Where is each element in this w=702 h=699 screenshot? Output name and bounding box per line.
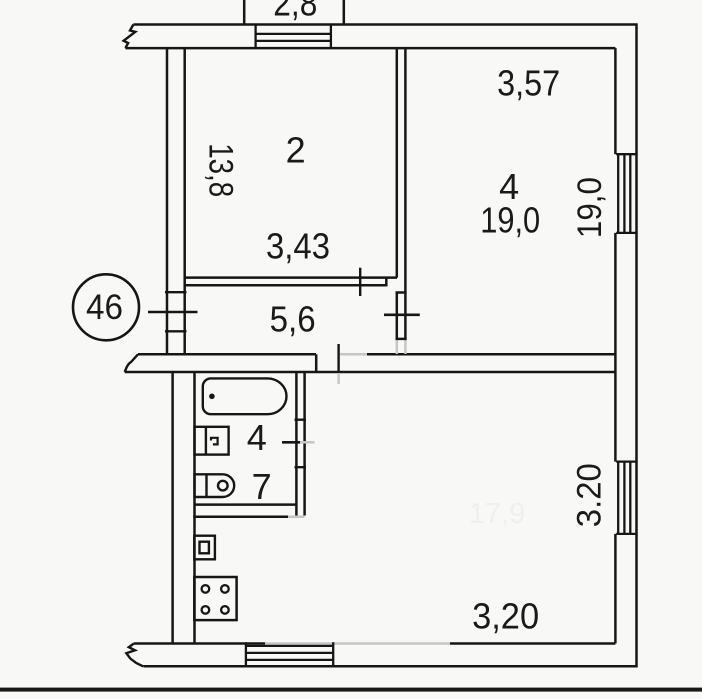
svg-text:19,0: 19,0: [571, 177, 609, 238]
svg-text:19,0: 19,0: [480, 199, 540, 240]
svg-text:46: 46: [86, 288, 123, 327]
svg-text:4: 4: [247, 417, 267, 458]
svg-text:7: 7: [252, 466, 272, 507]
svg-text:3,20: 3,20: [472, 596, 539, 637]
svg-text:13,8: 13,8: [202, 143, 240, 197]
svg-text:5,6: 5,6: [270, 298, 316, 339]
svg-text:2,8: 2,8: [273, 0, 317, 23]
svg-text:2: 2: [286, 130, 306, 171]
svg-text:3.20: 3.20: [571, 463, 609, 527]
svg-text:17,9: 17,9: [469, 498, 525, 530]
svg-text:3,43: 3,43: [266, 225, 330, 266]
svg-text:3,57: 3,57: [497, 63, 560, 104]
